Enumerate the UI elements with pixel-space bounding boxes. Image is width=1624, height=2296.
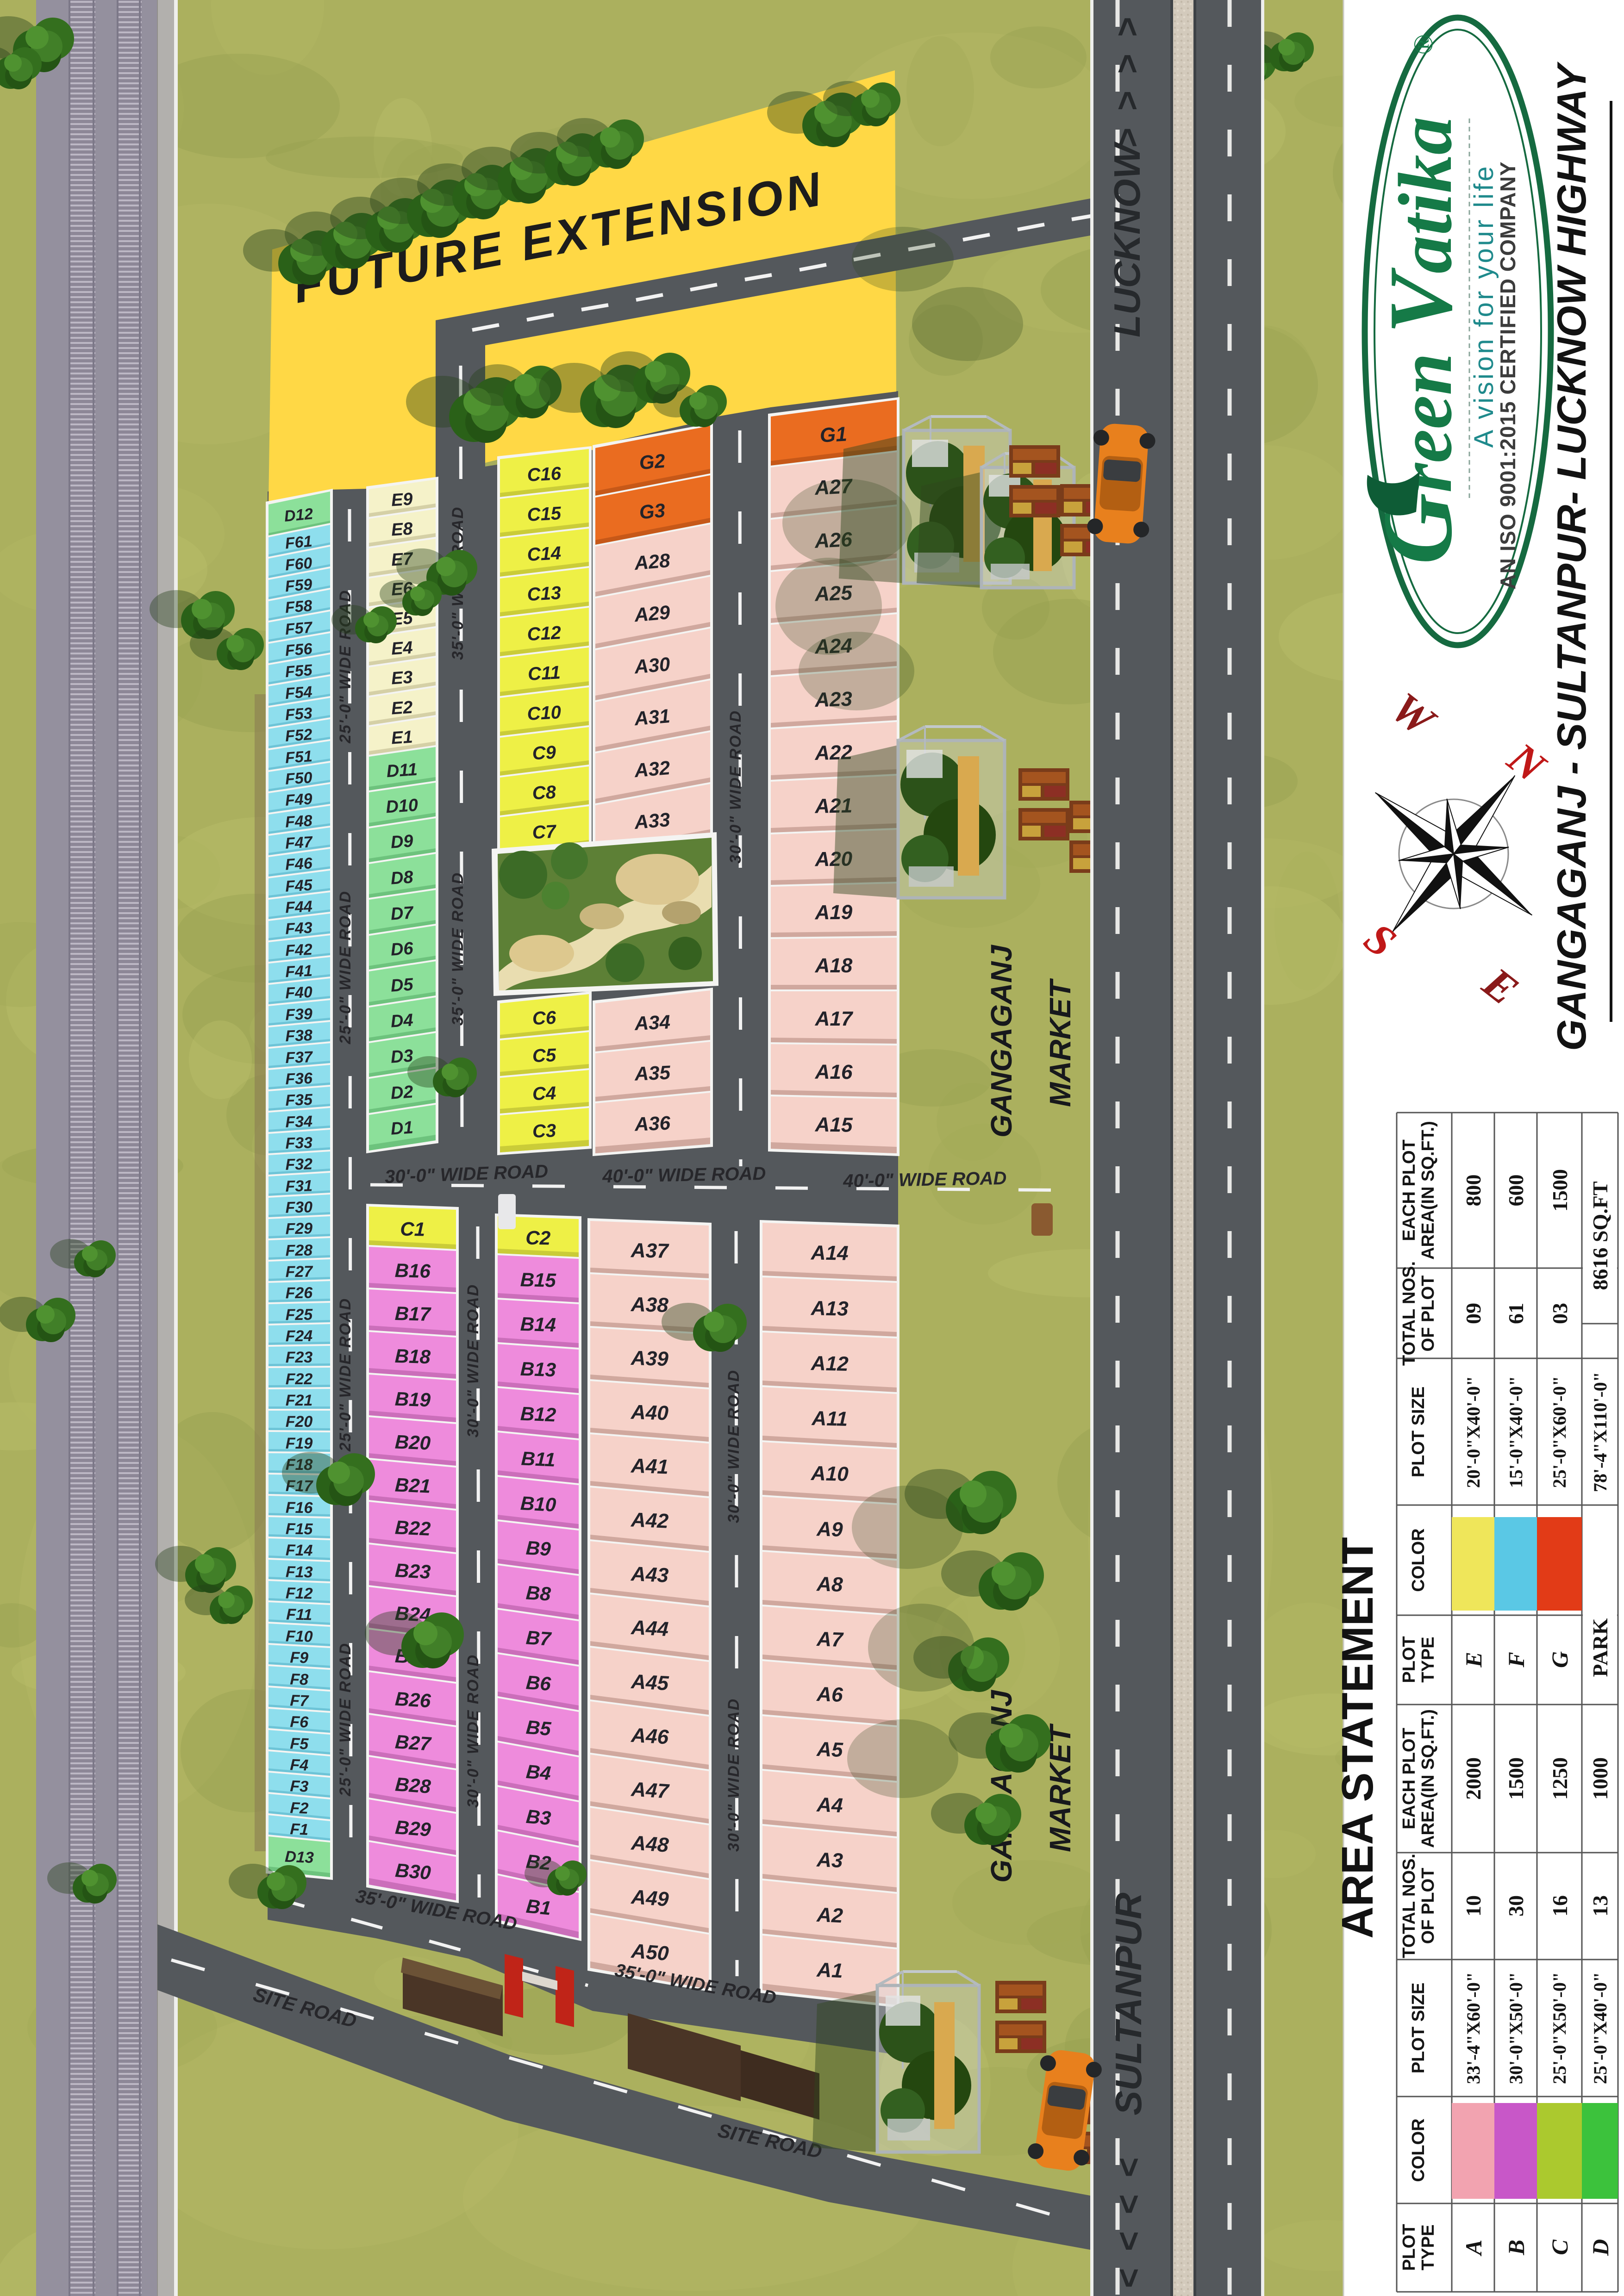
svg-text:A39: A39	[630, 1347, 669, 1370]
svg-text:78'-4"X110'-0": 78'-4"X110'-0"	[1590, 1372, 1611, 1492]
svg-text:F53: F53	[285, 704, 313, 724]
svg-text:F6: F6	[290, 1713, 309, 1731]
svg-text:F33: F33	[285, 1134, 313, 1152]
svg-text:A42: A42	[630, 1508, 669, 1532]
svg-text:F59: F59	[284, 576, 313, 596]
svg-text:G2: G2	[638, 450, 666, 474]
svg-text:PLOT SIZE: PLOT SIZE	[1409, 1387, 1428, 1477]
svg-text:B14: B14	[520, 1313, 556, 1336]
svg-text:F51: F51	[285, 747, 313, 767]
svg-text:A17: A17	[815, 1008, 854, 1030]
svg-text:F8: F8	[290, 1670, 309, 1688]
svg-text:1250: 1250	[1548, 1757, 1572, 1800]
svg-text:E2: E2	[391, 698, 413, 719]
svg-text:A5: A5	[816, 1738, 844, 1761]
svg-text:F21: F21	[286, 1392, 313, 1409]
svg-text:C13: C13	[527, 583, 562, 605]
svg-text:A32: A32	[633, 757, 671, 781]
svg-text:F42: F42	[285, 941, 312, 960]
svg-text:B29: B29	[394, 1816, 432, 1841]
svg-text:A13: A13	[810, 1297, 849, 1320]
svg-text:B20: B20	[394, 1431, 431, 1454]
svg-text:30'-0" WIDE ROAD: 30'-0" WIDE ROAD	[725, 1698, 743, 1852]
svg-text:C3: C3	[532, 1120, 556, 1142]
svg-text:F19: F19	[286, 1435, 313, 1452]
svg-text:B4: B4	[525, 1761, 551, 1784]
svg-text:®: ®	[1408, 34, 1438, 55]
svg-text:30'-0"X50'-0": 30'-0"X50'-0"	[1505, 1972, 1526, 2084]
svg-text:OF PLOT: OF PLOT	[1418, 1276, 1438, 1352]
svg-text:F36: F36	[285, 1070, 313, 1088]
svg-text:F58: F58	[284, 597, 313, 617]
svg-text:A49: A49	[630, 1885, 670, 1911]
svg-text:D8: D8	[390, 867, 414, 888]
svg-text:D13: D13	[284, 1848, 314, 1867]
svg-text:25'-0"X60'-0": 25'-0"X60'-0"	[1549, 1376, 1570, 1488]
svg-text:PARK: PARK	[1588, 1618, 1612, 1677]
svg-text:B10: B10	[520, 1492, 556, 1516]
svg-text:C14: C14	[527, 543, 562, 565]
svg-text:A36: A36	[634, 1112, 671, 1135]
svg-text:F13: F13	[286, 1563, 313, 1581]
svg-text:D1: D1	[390, 1118, 414, 1139]
svg-text:F54: F54	[285, 683, 313, 703]
svg-text:B28: B28	[394, 1773, 432, 1797]
svg-text:A50: A50	[630, 1940, 670, 1965]
svg-text:A8: A8	[816, 1573, 843, 1596]
svg-text:TYPE: TYPE	[1418, 1636, 1438, 1682]
svg-text:F22: F22	[286, 1370, 313, 1388]
svg-text:1500: 1500	[1504, 1757, 1528, 1800]
svg-text:C9: C9	[532, 742, 557, 764]
svg-text:25'-0" WIDE ROAD: 25'-0" WIDE ROAD	[337, 890, 354, 1045]
svg-text:SULTANPUR: SULTANPUR	[1108, 1892, 1149, 2116]
svg-text:PLOT: PLOT	[1399, 2224, 1419, 2271]
svg-text:B17: B17	[394, 1302, 431, 1325]
svg-text:F24: F24	[285, 1327, 312, 1345]
svg-text:B: B	[1503, 2240, 1529, 2255]
svg-text:C16: C16	[527, 463, 562, 485]
svg-text:B8: B8	[525, 1581, 552, 1605]
svg-text:D3: D3	[390, 1046, 414, 1067]
svg-text:1500: 1500	[1548, 1169, 1572, 1212]
svg-text:B6: B6	[525, 1671, 552, 1695]
svg-text:A1: A1	[816, 1959, 843, 1983]
svg-text:A11: A11	[811, 1407, 848, 1431]
svg-text:F23: F23	[286, 1349, 313, 1366]
svg-text:C4: C4	[532, 1083, 556, 1104]
svg-text:B15: B15	[520, 1269, 556, 1291]
svg-text:40'-0" WIDE ROAD: 40'-0" WIDE ROAD	[843, 1168, 1007, 1191]
svg-text:D2: D2	[390, 1082, 414, 1103]
svg-text:A9: A9	[816, 1518, 843, 1541]
svg-text:03: 03	[1548, 1303, 1572, 1324]
svg-text:A29: A29	[633, 601, 671, 626]
svg-text:AREA STATEMENT: AREA STATEMENT	[1333, 1537, 1382, 1939]
svg-text:F39: F39	[285, 1005, 312, 1024]
svg-text:F10: F10	[286, 1627, 313, 1645]
svg-text:10: 10	[1462, 1895, 1485, 1916]
svg-text:2000: 2000	[1462, 1757, 1485, 1800]
svg-text:F41: F41	[285, 962, 312, 981]
svg-text:F47: F47	[285, 833, 314, 852]
svg-text:A35: A35	[634, 1061, 671, 1084]
svg-text:F25: F25	[285, 1306, 313, 1324]
svg-text:F38: F38	[285, 1027, 313, 1045]
svg-text:F29: F29	[285, 1220, 312, 1238]
svg-text:F60: F60	[284, 554, 313, 574]
svg-text:E4: E4	[391, 638, 413, 659]
svg-text:F16: F16	[286, 1499, 313, 1517]
svg-text:> > > >: > > > >	[1108, 14, 1146, 149]
svg-text:A45: A45	[630, 1670, 669, 1695]
svg-text:B13: B13	[520, 1358, 556, 1381]
svg-text:25'-0" WIDE ROAD: 25'-0" WIDE ROAD	[337, 1643, 354, 1797]
svg-text:A16: A16	[815, 1061, 853, 1084]
svg-text:A43: A43	[630, 1562, 669, 1587]
svg-text:A: A	[1461, 2240, 1487, 2256]
svg-text:A33: A33	[633, 809, 671, 833]
svg-text:30'-0" WIDE ROAD: 30'-0" WIDE ROAD	[725, 1369, 743, 1523]
svg-text:TYPE: TYPE	[1418, 2224, 1438, 2270]
svg-text:E: E	[1461, 1652, 1487, 1668]
svg-text:30'-0" WIDE ROAD: 30'-0" WIDE ROAD	[464, 1284, 482, 1437]
svg-text:8616 SQ.FT: 8616 SQ.FT	[1588, 1181, 1612, 1290]
svg-text:1000: 1000	[1588, 1757, 1612, 1800]
svg-text:F49: F49	[285, 790, 313, 809]
svg-text:A19: A19	[814, 901, 853, 924]
svg-text:A46: A46	[630, 1724, 669, 1749]
svg-text:F15: F15	[286, 1520, 313, 1538]
svg-text:TOTAL NOS.: TOTAL NOS.	[1399, 1854, 1419, 1958]
svg-text:G1: G1	[819, 423, 847, 447]
svg-text:F20: F20	[286, 1413, 313, 1431]
svg-text:B21: B21	[394, 1474, 431, 1497]
svg-text:F11: F11	[286, 1605, 312, 1624]
svg-text:600: 600	[1504, 1175, 1528, 1207]
svg-text:G: G	[1547, 1651, 1573, 1668]
svg-text:C12: C12	[526, 622, 562, 645]
svg-text:F31: F31	[285, 1177, 312, 1195]
svg-text:F27: F27	[285, 1263, 313, 1281]
svg-text:F3: F3	[290, 1777, 309, 1795]
svg-text:A12: A12	[810, 1352, 849, 1375]
svg-text:20'-0"X40'-0": 20'-0"X40'-0"	[1463, 1376, 1484, 1488]
svg-text:EACH PLOT: EACH PLOT	[1399, 1728, 1419, 1829]
svg-text:AN ISO 9001:2015 CERTIFIED COM: AN ISO 9001:2015 CERTIFIED COMPANY	[1496, 161, 1520, 589]
svg-text:GANGAGANJ - SULTANPUR- LUCKNOW: GANGAGANJ - SULTANPUR- LUCKNOW HIGHWAY	[1549, 61, 1594, 1051]
svg-text:A18: A18	[815, 954, 853, 977]
svg-text:30: 30	[1504, 1895, 1528, 1916]
svg-text:F55: F55	[285, 661, 313, 681]
svg-text:A7: A7	[816, 1628, 844, 1651]
svg-text:25'-0"X40'-0": 25'-0"X40'-0"	[1590, 1972, 1611, 2084]
svg-text:A48: A48	[630, 1831, 669, 1857]
svg-text:F4: F4	[290, 1756, 309, 1774]
svg-text:A28: A28	[633, 549, 671, 574]
svg-text:A31: A31	[633, 705, 671, 729]
svg-text:OF PLOT: OF PLOT	[1418, 1868, 1438, 1944]
svg-text:F1: F1	[290, 1820, 309, 1839]
svg-text:D10: D10	[385, 796, 418, 817]
svg-text:30'-0" WIDE ROAD: 30'-0" WIDE ROAD	[464, 1654, 482, 1808]
svg-text:< < < <: < < < <	[1109, 2154, 1148, 2289]
svg-text:F52: F52	[285, 726, 313, 745]
svg-text:D5: D5	[390, 975, 414, 996]
svg-text:GANGAGANJ: GANGAGANJ	[985, 945, 1018, 1138]
svg-text:25'-0" WIDE ROAD: 25'-0" WIDE ROAD	[337, 1298, 354, 1452]
svg-text:C5: C5	[532, 1045, 557, 1066]
svg-text:F: F	[1503, 1652, 1529, 1668]
svg-text:A47: A47	[630, 1778, 670, 1803]
svg-text:35'-0" WIDE ROAD: 35'-0" WIDE ROAD	[449, 872, 467, 1026]
svg-text:D4: D4	[390, 1010, 414, 1031]
svg-text:F28: F28	[285, 1242, 312, 1260]
svg-text:F43: F43	[285, 919, 313, 938]
svg-text:C15: C15	[527, 503, 562, 525]
svg-text:D7: D7	[390, 903, 415, 924]
svg-text:C10: C10	[526, 702, 562, 724]
svg-text:F30: F30	[285, 1198, 312, 1216]
svg-text:PLOT: PLOT	[1399, 1636, 1419, 1683]
svg-text:E9: E9	[391, 490, 413, 510]
svg-text:A3: A3	[816, 1848, 843, 1872]
svg-text:F46: F46	[285, 854, 313, 873]
svg-text:MARKET: MARKET	[1043, 978, 1077, 1107]
svg-text:A37: A37	[630, 1239, 669, 1263]
svg-text:F32: F32	[285, 1155, 313, 1174]
svg-text:A30: A30	[633, 653, 671, 678]
svg-text:13: 13	[1588, 1895, 1612, 1916]
svg-text:16: 16	[1548, 1895, 1572, 1916]
svg-text:F56: F56	[284, 640, 313, 660]
svg-text:09: 09	[1462, 1303, 1485, 1324]
svg-text:B12: B12	[520, 1403, 556, 1426]
svg-text:G3: G3	[638, 499, 666, 523]
svg-text:TOTAL NOS.: TOTAL NOS.	[1399, 1261, 1419, 1366]
svg-text:E1: E1	[391, 728, 413, 748]
svg-text:F44: F44	[285, 898, 313, 917]
svg-text:D11: D11	[386, 760, 418, 781]
svg-text:COLOR: COLOR	[1409, 2118, 1428, 2182]
svg-text:B1: B1	[525, 1895, 552, 1919]
svg-text:B22: B22	[394, 1516, 431, 1540]
svg-text:EACH PLOT: EACH PLOT	[1399, 1139, 1419, 1241]
svg-text:B7: B7	[525, 1626, 552, 1650]
svg-text:F48: F48	[285, 812, 313, 831]
svg-text:F5: F5	[290, 1735, 309, 1753]
svg-text:A4: A4	[816, 1793, 843, 1817]
svg-text:B26: B26	[394, 1688, 431, 1712]
svg-text:B18: B18	[394, 1345, 431, 1368]
svg-text:C: C	[1547, 2240, 1573, 2255]
svg-text:C1: C1	[400, 1218, 425, 1240]
svg-text:A34: A34	[634, 1011, 671, 1034]
svg-text:B5: B5	[525, 1716, 552, 1740]
svg-text:A38: A38	[630, 1293, 668, 1317]
svg-text:40'-0" WIDE ROAD: 40'-0" WIDE ROAD	[602, 1164, 766, 1187]
svg-text:D12: D12	[283, 505, 314, 525]
svg-text:C2: C2	[525, 1227, 551, 1249]
svg-text:C6: C6	[532, 1008, 557, 1029]
svg-text:B19: B19	[394, 1388, 431, 1411]
svg-text:B23: B23	[394, 1559, 431, 1583]
svg-text:15'-0"X40'-0": 15'-0"X40'-0"	[1505, 1376, 1526, 1488]
svg-text:F14: F14	[286, 1542, 313, 1560]
svg-text:A6: A6	[816, 1683, 844, 1706]
svg-text:F34: F34	[285, 1113, 313, 1131]
svg-text:B16: B16	[394, 1259, 431, 1282]
svg-text:F57: F57	[284, 619, 314, 639]
svg-text:F7: F7	[290, 1692, 310, 1710]
svg-text:C11: C11	[527, 662, 561, 684]
svg-text:F2: F2	[290, 1799, 309, 1817]
svg-text:A2: A2	[816, 1904, 843, 1928]
svg-text:A14: A14	[810, 1241, 849, 1264]
svg-text:AREA(IN SQ.FT.): AREA(IN SQ.FT.)	[1418, 1121, 1438, 1260]
svg-text:F35: F35	[285, 1091, 313, 1109]
svg-text:B3: B3	[525, 1805, 552, 1829]
svg-text:A10: A10	[810, 1462, 849, 1486]
svg-text:PLOT SIZE: PLOT SIZE	[1409, 1983, 1428, 2073]
svg-text:E3: E3	[391, 668, 413, 689]
svg-text:A44: A44	[630, 1616, 669, 1641]
svg-text:F50: F50	[285, 769, 313, 788]
svg-text:61: 61	[1504, 1303, 1528, 1324]
svg-text:25'-0"X50'-0": 25'-0"X50'-0"	[1549, 1972, 1570, 2084]
svg-text:30'-0" WIDE ROAD: 30'-0" WIDE ROAD	[727, 710, 744, 864]
svg-text:33'-4"X60'-0": 33'-4"X60'-0"	[1463, 1972, 1484, 2084]
svg-text:D9: D9	[390, 831, 414, 852]
svg-text:B9: B9	[525, 1537, 552, 1560]
svg-text:A15: A15	[815, 1113, 853, 1136]
svg-text:B27: B27	[394, 1731, 432, 1755]
svg-text:AREA(IN SQ.FT.): AREA(IN SQ.FT.)	[1418, 1709, 1438, 1848]
svg-text:LUCKNOW: LUCKNOW	[1106, 141, 1148, 337]
svg-text:F37: F37	[285, 1048, 314, 1067]
svg-text:B30: B30	[394, 1859, 432, 1884]
svg-text:E8: E8	[391, 519, 414, 540]
svg-text:COLOR: COLOR	[1409, 1528, 1428, 1592]
svg-text:800: 800	[1462, 1175, 1485, 1207]
svg-text:A40: A40	[630, 1401, 669, 1425]
svg-text:B11: B11	[521, 1447, 556, 1470]
svg-text:C7: C7	[532, 821, 557, 843]
svg-text:F12: F12	[286, 1584, 313, 1602]
svg-text:F9: F9	[290, 1649, 309, 1667]
svg-text:D6: D6	[390, 939, 414, 959]
svg-text:A41: A41	[630, 1454, 669, 1478]
svg-text:C8: C8	[532, 782, 557, 804]
svg-text:F26: F26	[285, 1284, 313, 1302]
svg-text:F45: F45	[285, 876, 313, 895]
svg-text:D: D	[1587, 2239, 1613, 2256]
svg-text:A vision for your life: A vision for your life	[1469, 164, 1499, 448]
svg-text:F40: F40	[285, 983, 312, 1002]
svg-text:F61: F61	[284, 533, 313, 553]
